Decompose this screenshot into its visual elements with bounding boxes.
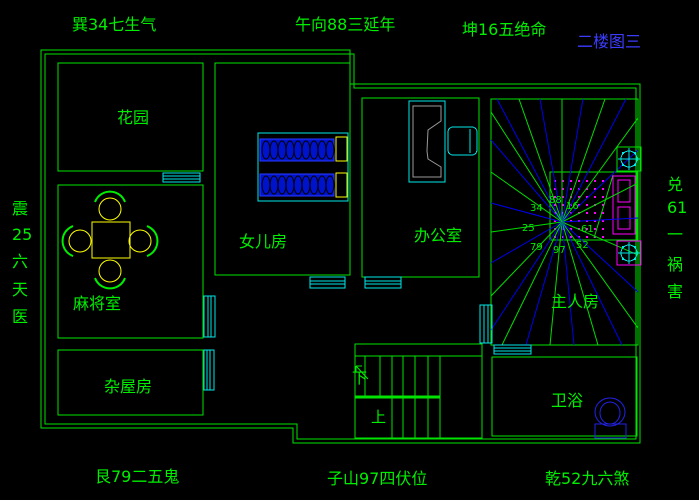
- label-gua-left-char: 25: [12, 225, 32, 244]
- stairs-upper-steps: [365, 356, 440, 397]
- mahjong-chair-bottom: [99, 260, 121, 282]
- mahjong-room-door: [204, 296, 215, 337]
- mahjong-chair-backs: [63, 192, 158, 289]
- daughter-bed-1-mattress: [260, 139, 334, 161]
- star-number: 34: [530, 203, 543, 214]
- page-title: 二楼图三: [577, 32, 641, 51]
- office-room-outline: [362, 98, 479, 277]
- room-label-office: 办公室: [414, 226, 462, 245]
- master-bedroom-door: [480, 305, 492, 343]
- stairs-up-label: 上: [371, 408, 386, 426]
- label-gua-right-char: 害: [667, 282, 683, 301]
- room-label-bathroom: 卫浴: [551, 391, 583, 410]
- floorplan-screen: 巽34七生气 午向88三延年 坤16五绝命 二楼图三 艮79二五鬼 子山97四伏…: [0, 0, 699, 500]
- storage-room-door: [204, 350, 214, 390]
- master-bed-pillow-1: [618, 180, 630, 202]
- mahjong-table: [92, 222, 130, 258]
- stairs-down-label: 下: [352, 369, 367, 387]
- master-bed-pillow-2: [618, 207, 630, 229]
- mahjong-chair-right: [129, 230, 151, 252]
- label-gua-top-left: 巽34七生气: [72, 15, 156, 34]
- label-gua-bottom-right: 乾52九六煞: [545, 469, 629, 488]
- label-gua-left-char: 震: [12, 199, 28, 218]
- star-number: 88: [549, 195, 562, 206]
- label-gua-right-char: 兑: [667, 175, 683, 194]
- label-gua-right: 兑 61 一 祸 害: [667, 175, 687, 301]
- fan-symbol-bottom: [617, 241, 641, 265]
- floorplan-canvas: 巽34七生气 午向88三延年 坤16五绝命 二楼图三 艮79二五鬼 子山97四伏…: [0, 0, 699, 500]
- room-label-garden: 花园: [117, 108, 149, 127]
- office-chair: [448, 127, 477, 155]
- label-gua-bottom-center: 子山97四伏位: [327, 469, 427, 488]
- garden-window: [163, 173, 200, 182]
- mahjong-room-outline: [58, 185, 203, 338]
- daughter-bed-2-pillow: [336, 173, 347, 197]
- label-gua-right-char: 祸: [667, 255, 683, 274]
- daughter-room-window: [310, 277, 345, 288]
- label-gua-left-char: 六: [12, 252, 28, 271]
- stairs-lower-steps: [392, 397, 440, 438]
- label-gua-bottom-left: 艮79二五鬼: [95, 467, 179, 486]
- stairs-top-wall: [355, 344, 482, 356]
- star-numbers: 34 88 16 25 61 79 97 52: [522, 195, 594, 256]
- office-window: [365, 277, 401, 288]
- label-gua-left-char: 医: [12, 307, 28, 326]
- daughter-bed-1-pillow: [336, 137, 347, 161]
- room-label-storage: 杂屋房: [104, 377, 152, 396]
- star-number: 97: [553, 245, 566, 256]
- star-number: 61: [581, 224, 594, 235]
- label-gua-right-char: 一: [667, 225, 683, 244]
- room-label-daughter: 女儿房: [239, 232, 287, 251]
- label-gua-left-char: 天: [12, 280, 28, 299]
- star-number: 52: [576, 240, 589, 251]
- star-number: 16: [566, 201, 579, 212]
- master-bed-headboard: [613, 176, 635, 234]
- room-label-mahjong: 麻将室: [73, 294, 121, 313]
- star-number: 25: [522, 223, 535, 234]
- bathroom-window: [494, 345, 531, 354]
- toilet: [595, 398, 626, 438]
- label-gua-left: 震 25 六 天 医: [12, 199, 32, 326]
- label-gua-top-right: 坤16五绝命: [462, 20, 546, 39]
- mahjong-chair-top: [99, 198, 121, 220]
- mahjong-chair-left: [69, 230, 91, 252]
- label-gua-top-center: 午向88三延年: [295, 15, 395, 34]
- star-number: 79: [530, 242, 543, 253]
- label-gua-right-char: 61: [667, 198, 687, 217]
- daughter-bed-2-mattress: [260, 174, 334, 196]
- room-label-master: 主人房: [551, 292, 599, 311]
- office-desk-top: [413, 106, 441, 177]
